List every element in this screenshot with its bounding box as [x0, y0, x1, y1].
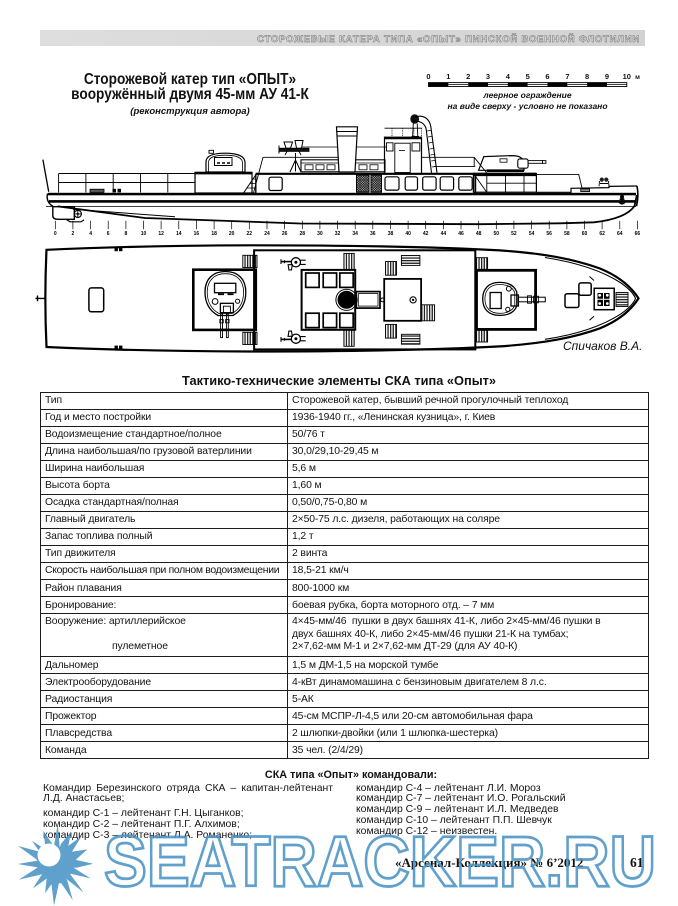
svg-text:SEATRACKER.RU: SEATRACKER.RU — [104, 823, 656, 902]
